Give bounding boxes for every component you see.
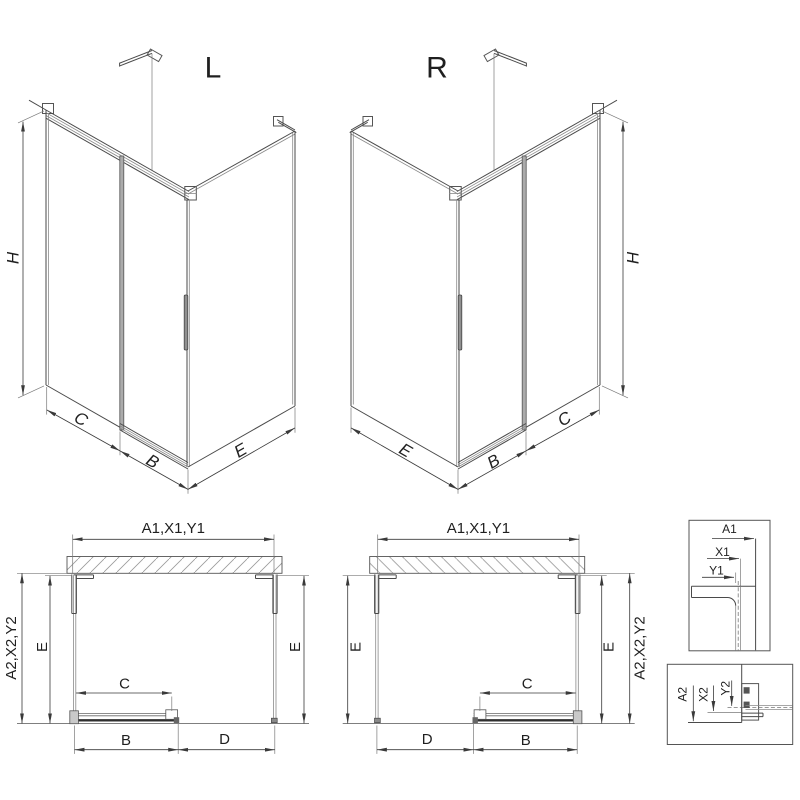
dim-label-c-left: C [71,408,92,431]
variant-label-l: L [205,52,222,85]
detail-box-top-profile: A1 X1 Y1 [689,520,770,651]
plan-left-b-label: B [121,732,131,749]
track-end-block [70,711,79,724]
dim-label-b-right: B [484,450,503,472]
plan-labels-right: A1,X1,Y1 A2,X2,Y2 E E C B D [348,520,649,749]
plan-right-width-label: A1,X1,Y1 [447,520,510,537]
detail-x1-label: X1 [715,545,730,559]
detail-a1-label: A1 [722,522,737,536]
profile-clip [744,687,750,693]
support-foot [147,49,162,62]
iso-labels-right: R H C B E [396,52,643,473]
wall-hatch [67,557,282,574]
dim-label-h-left: H [4,251,23,264]
dim-b-d [75,724,275,754]
right-side-glass [256,575,278,721]
plan-left-depth-outer-label: A2,X2,Y2 [3,616,20,679]
door-track-plan [17,710,309,724]
iso-geometry-left [18,49,296,494]
dim-label-e-left: E [231,439,251,461]
detail-box-side-profile: A2 X2 Y2 [667,664,792,744]
door-handle [184,295,188,350]
technical-drawing-page: L H C B E R H C B E [0,0,800,800]
plan-geometry-left [17,535,309,754]
dim-fixed-c [76,693,172,711]
plan-geometry-right [343,535,635,754]
dim-label-b-left: B [143,450,162,472]
wall-edge-line [29,100,46,110]
side-wall-bracket [274,117,297,133]
plan-right-b-label: B [521,732,531,749]
iso-labels-left: L H C B E [4,52,251,473]
dim-label-c-right: C [554,407,575,430]
plan-left-e-right-label: E [287,642,304,652]
plan-left-c-label: C [119,676,130,693]
detail-y2-label: Y2 [719,681,733,696]
profile-clip [744,702,750,708]
support-bar [120,49,162,170]
plan-left-width-label: A1,X1,Y1 [142,520,205,537]
door-guide-block [174,717,179,723]
corner-foot [271,718,277,723]
plan-right-c-label: C [522,676,533,693]
plan-labels-left: A1,X1,Y1 A2,X2,Y2 E E C B D [3,520,304,749]
plan-right-e-left-label: E [348,642,365,652]
plan-left-e-left-label: E [34,642,51,652]
iso-geometry-right [350,49,628,494]
detail-y1-label: Y1 [709,564,724,578]
detail-a2-label: A2 [676,687,690,702]
detail-x2-label: X2 [696,687,710,702]
dim-label-e-right: E [396,439,416,461]
plan-right-e-right-label: E [601,642,618,652]
variant-label-r: R [426,52,448,85]
door-leading-edge [120,156,124,430]
plan-left-d-label: D [219,731,230,748]
plan-right-d-label: D [422,731,433,748]
plan-right-depth-outer-label: A2,X2,Y2 [632,616,649,679]
shower-enclosure-drawing: L H C B E R H C B E [0,0,800,800]
dim-label-h-right: H [624,251,643,264]
